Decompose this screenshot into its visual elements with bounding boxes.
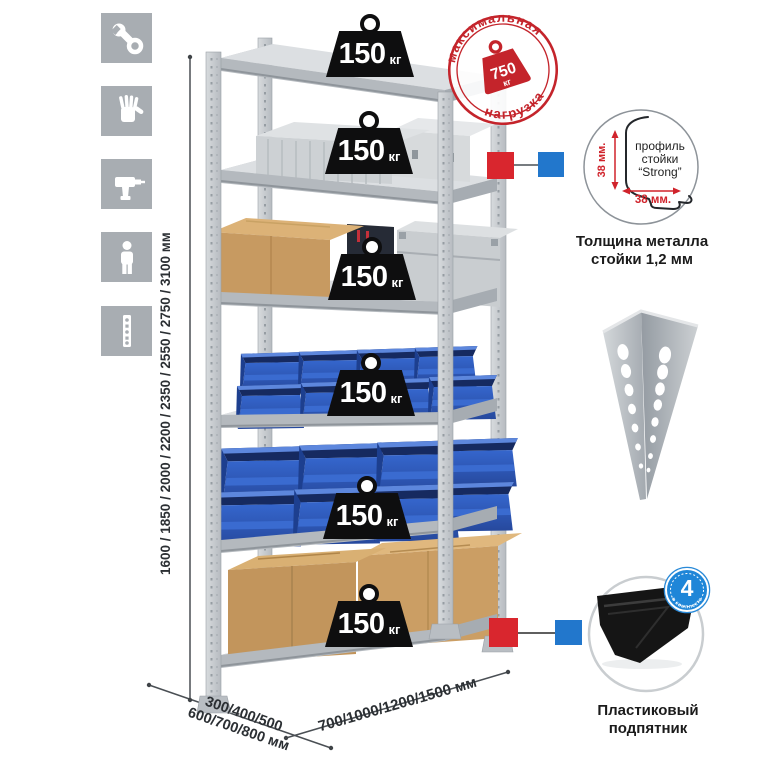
weight-value: 150 bbox=[339, 38, 386, 71]
shelf-weight-2: 150кг bbox=[325, 111, 413, 174]
svg-text:38 мм.: 38 мм. bbox=[635, 194, 671, 206]
shelf-weight-1: 150кг bbox=[326, 14, 414, 77]
svg-text:“Strong”: “Strong” bbox=[638, 165, 681, 179]
callout-bottom bbox=[489, 618, 582, 647]
foot-caption-line1: Пластиковый bbox=[578, 702, 718, 720]
max-load-stamp: максимальная нагрузка 750 кг bbox=[441, 8, 565, 132]
rack-front-left-post bbox=[206, 52, 221, 712]
callout-top bbox=[487, 152, 564, 179]
weight-unit: кг bbox=[386, 514, 398, 529]
svg-text:профиль: профиль bbox=[635, 139, 685, 153]
callout-top-blue-square bbox=[538, 152, 564, 177]
kit-badge-value: 4 bbox=[681, 575, 694, 601]
weight-value: 150 bbox=[338, 608, 385, 641]
shelf-weight-4: 150кг bbox=[327, 353, 415, 416]
infographic-canvas: 38 мм. 38 мм. профиль стойки “Strong” bbox=[0, 0, 765, 765]
weight-unit: кг bbox=[390, 391, 402, 406]
callout-bottom-red-square bbox=[489, 618, 518, 647]
svg-text:38 мм.: 38 мм. bbox=[596, 143, 608, 178]
weight-unit: кг bbox=[388, 149, 400, 164]
sidebar-icon-wrench bbox=[101, 13, 152, 63]
svg-text:стойки: стойки bbox=[642, 152, 679, 166]
shelf-weight-5: 150кг bbox=[323, 476, 411, 539]
height-dimension-label: 1600 / 1850 / 2000 / 2200 / 2350 / 2550 … bbox=[158, 175, 173, 575]
plastic-foot-circle: 4 в комплекте bbox=[589, 568, 710, 692]
weight-unit: кг bbox=[388, 622, 400, 637]
sidebar-icon-gloves bbox=[101, 86, 152, 136]
weight-value: 150 bbox=[336, 500, 383, 533]
sidebar-icon-drill bbox=[101, 159, 152, 209]
weight-value: 150 bbox=[340, 377, 387, 410]
sidebar-icon-rack-post bbox=[101, 306, 152, 356]
rack-front-right-post bbox=[438, 92, 453, 638]
shelf-weight-6: 150кг bbox=[325, 584, 413, 647]
sidebar-icon-person bbox=[101, 232, 152, 282]
weight-unit: кг bbox=[389, 52, 401, 67]
weight-value: 150 bbox=[338, 135, 385, 168]
person-icon bbox=[107, 237, 147, 277]
callout-top-red-square bbox=[487, 152, 514, 179]
rack-post-icon bbox=[107, 311, 147, 351]
wrench-icon bbox=[107, 18, 147, 58]
profile-caption: Толщина металла стойки 1,2 мм bbox=[572, 233, 712, 268]
foot-caption: Пластиковый подпятник bbox=[578, 702, 718, 737]
kit-badge: 4 в комплекте bbox=[665, 568, 710, 613]
profile-caption-line2: стойки 1,2 мм bbox=[572, 251, 712, 269]
profile-label: профиль стойки “Strong” bbox=[635, 139, 685, 179]
callout-bottom-blue-square bbox=[555, 620, 582, 645]
profile-caption-line1: Толщина металла bbox=[572, 233, 712, 251]
front-right-foot bbox=[429, 624, 461, 639]
metal-corner-profile bbox=[603, 311, 698, 500]
foot-caption-line2: подпятник bbox=[578, 720, 718, 738]
profile-callout-circle: 38 мм. 38 мм. профиль стойки “Strong” bbox=[584, 110, 698, 224]
weight-value: 150 bbox=[341, 261, 388, 294]
shelf-weight-3: 150кг bbox=[328, 237, 416, 300]
weight-unit: кг bbox=[391, 275, 403, 290]
gloves-icon bbox=[107, 91, 147, 131]
drill-icon bbox=[107, 164, 147, 204]
